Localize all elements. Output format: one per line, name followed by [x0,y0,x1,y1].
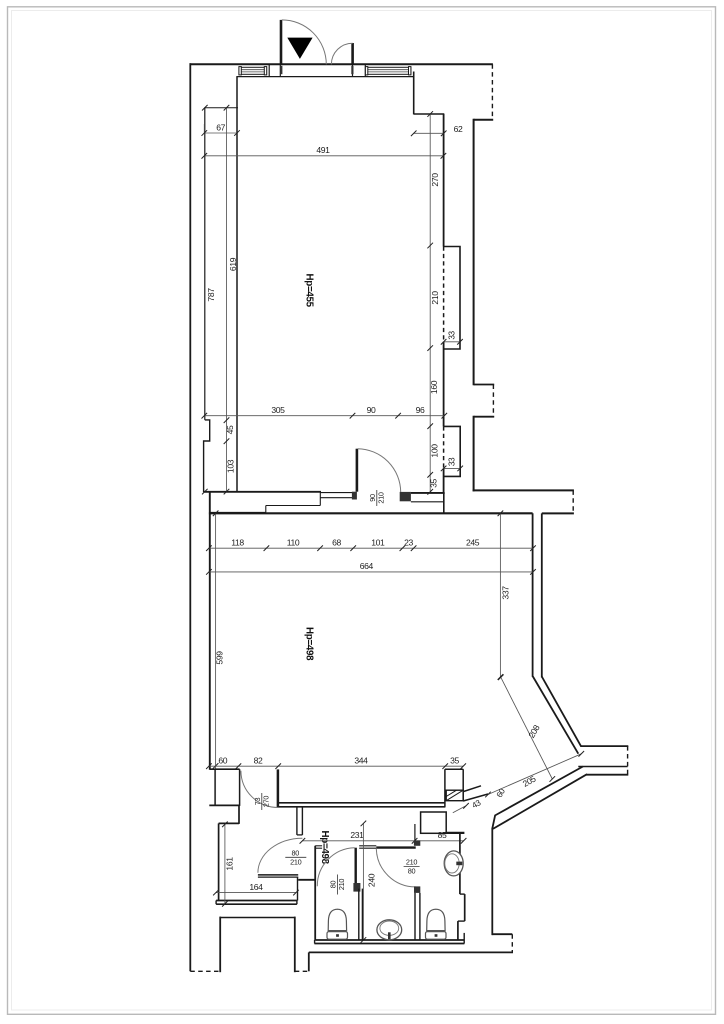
svg-text:33: 33 [448,457,457,466]
svg-text:35: 35 [429,479,439,488]
svg-text:101: 101 [371,537,385,547]
svg-text:205: 205 [521,774,538,789]
svg-text:240: 240 [367,873,377,887]
svg-text:80: 80 [292,848,300,857]
svg-text:619: 619 [228,257,238,271]
svg-text:100: 100 [430,444,440,458]
svg-text:210: 210 [430,291,440,305]
svg-text:160: 160 [429,380,439,394]
svg-text:82: 82 [254,755,263,765]
svg-text:599: 599 [215,651,225,665]
svg-text:Hp=455: Hp=455 [304,274,315,308]
svg-text:210: 210 [376,492,385,504]
svg-text:344: 344 [354,755,368,765]
svg-text:270: 270 [261,796,270,808]
svg-text:305: 305 [271,405,285,415]
svg-text:270: 270 [430,173,440,187]
svg-text:33: 33 [448,331,457,340]
svg-text:67: 67 [216,122,225,132]
svg-text:110: 110 [287,537,300,547]
svg-text:45: 45 [225,425,235,434]
svg-text:103: 103 [226,459,236,473]
svg-text:208: 208 [526,723,542,740]
svg-text:62: 62 [454,124,463,134]
svg-text:43: 43 [470,798,482,810]
svg-text:118: 118 [231,537,244,547]
svg-text:96: 96 [416,405,425,415]
svg-text:35: 35 [450,755,459,765]
svg-text:245: 245 [466,537,480,547]
svg-text:337: 337 [501,586,511,600]
svg-text:210: 210 [337,879,346,891]
svg-text:231: 231 [350,830,364,840]
svg-text:80: 80 [408,866,416,875]
svg-text:Hp=498: Hp=498 [304,627,315,661]
svg-text:68: 68 [332,537,341,547]
svg-text:491: 491 [316,145,330,155]
svg-text:787: 787 [206,288,216,302]
svg-text:90: 90 [367,405,376,415]
svg-text:60: 60 [218,755,227,765]
svg-text:210: 210 [406,858,418,867]
svg-text:161: 161 [225,857,235,871]
svg-text:210: 210 [290,857,302,866]
svg-text:23: 23 [404,537,413,547]
svg-text:664: 664 [360,561,374,571]
svg-text:164: 164 [249,882,263,892]
